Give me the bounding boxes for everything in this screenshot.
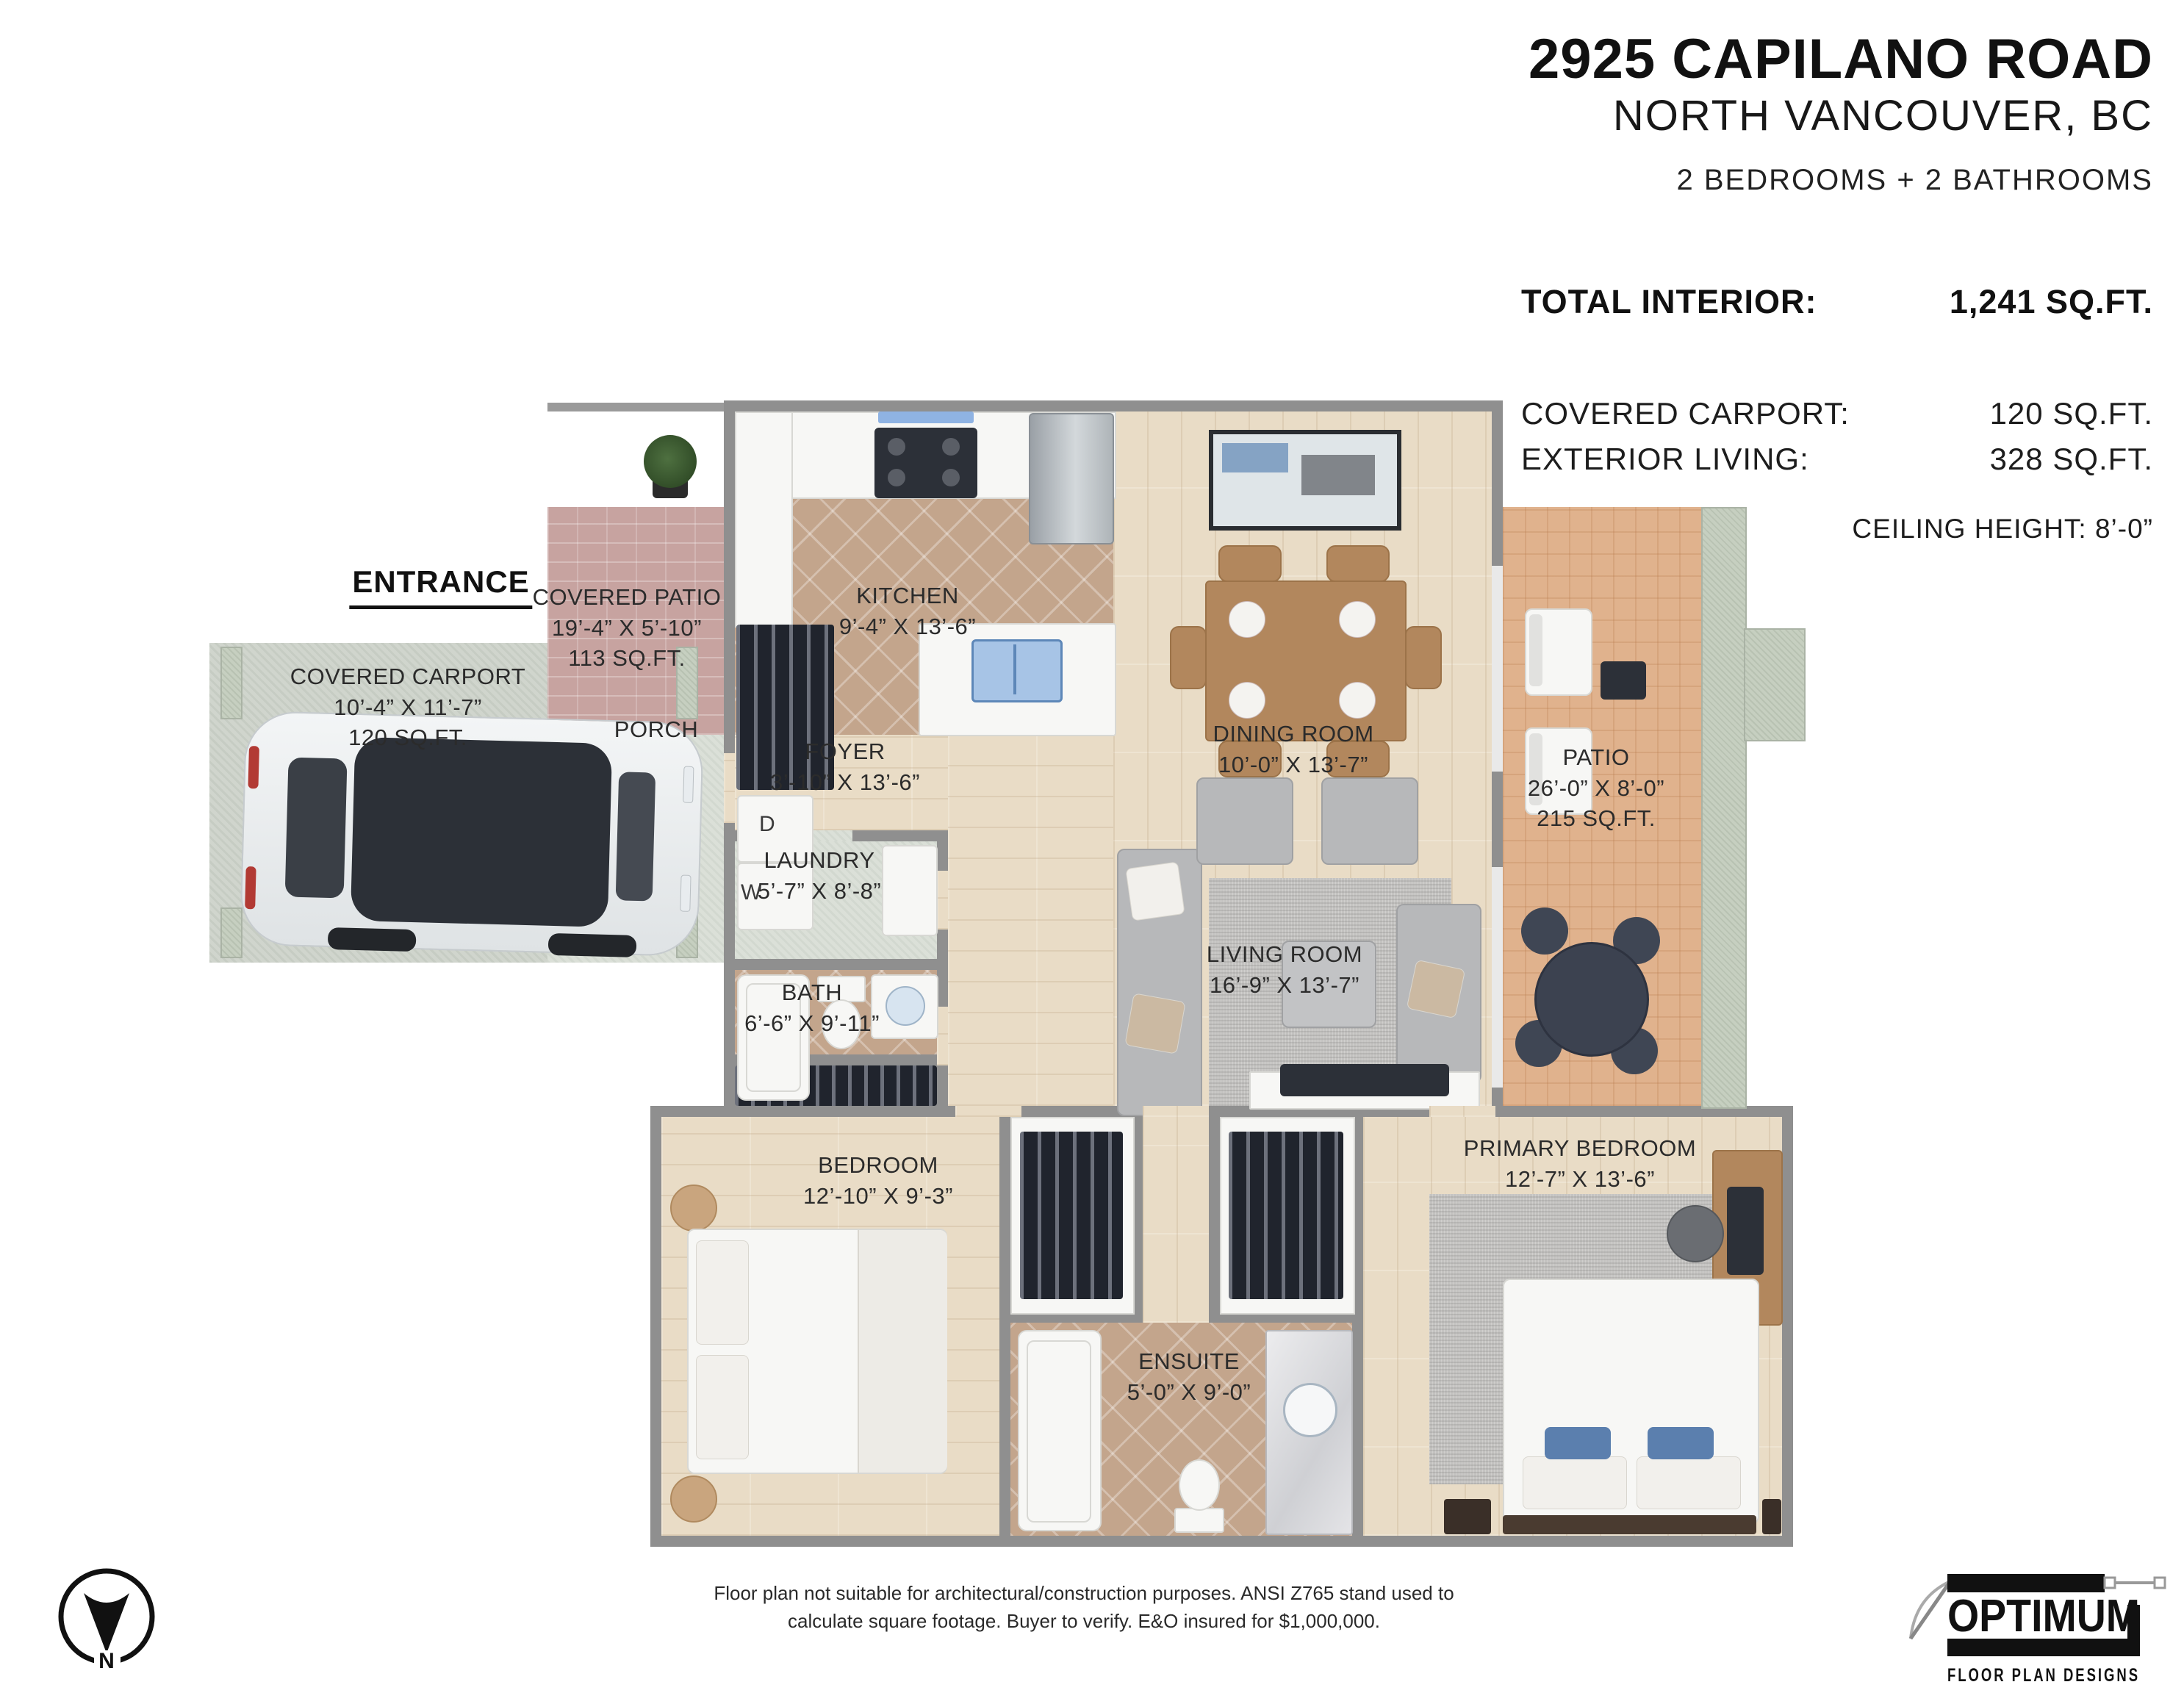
listing-header: 2925 CAPILANO ROAD NORTH VANCOUVER, BC 2… bbox=[1529, 29, 2153, 197]
room-label-kitchen: KITCHEN 9’-4” X 13’-6” bbox=[839, 580, 976, 641]
optimum-logo: OPTIMUM FLOOR PLAN DESIGNS bbox=[1905, 1559, 2177, 1692]
kitchen-tall-cabinet bbox=[735, 411, 793, 628]
logo-title: OPTIMUM bbox=[1947, 1591, 2140, 1642]
room-label-covered-patio: COVERED PATIO 19’-4” X 5’-10” 113 SQ.FT. bbox=[533, 582, 722, 674]
ensuite-toilet-tank-icon bbox=[1174, 1508, 1224, 1533]
sofa-icon bbox=[1117, 849, 1202, 1116]
room-label-primary-bedroom: PRIMARY BEDROOM 12’-7” X 13’-6” bbox=[1464, 1133, 1696, 1194]
room-label-bath: BATH 6’-6” X 9’-11” bbox=[744, 977, 880, 1038]
plant-icon bbox=[644, 435, 697, 488]
dining-chair bbox=[1326, 545, 1390, 582]
laundry-side-door-opening bbox=[937, 871, 948, 930]
patio-chair-icon bbox=[1521, 907, 1568, 955]
room-label-ensuite: ENSUITE 5’-0” X 9’-0” bbox=[1127, 1346, 1251, 1407]
loveseat-icon bbox=[1396, 904, 1481, 1083]
closet-clothes bbox=[1020, 1132, 1123, 1299]
area-stats: TOTAL INTERIOR: 1,241 SQ.FT. COVERED CAR… bbox=[1521, 283, 2153, 544]
dining-chair bbox=[1218, 545, 1282, 582]
washer-letter: W bbox=[741, 880, 761, 905]
room-label-patio: PATIO 26’-0” X 8’-0” 215 SQ.FT. bbox=[1528, 742, 1664, 834]
bath-door-opening bbox=[937, 1007, 948, 1065]
listing-city: NORTH VANCOUVER, BC bbox=[1529, 90, 2153, 143]
north-compass-icon: N bbox=[51, 1564, 169, 1685]
disclaimer: Floor plan not suitable for architectura… bbox=[643, 1580, 1525, 1635]
armchair-icon bbox=[1321, 777, 1418, 865]
covered-carport-value: 120 SQ.FT. bbox=[1990, 396, 2153, 431]
corridor-door-opening bbox=[1143, 1106, 1209, 1117]
range-hood-icon bbox=[878, 411, 974, 423]
primary-nightstand-icon bbox=[1444, 1499, 1491, 1534]
primary-door-opening bbox=[1429, 1106, 1495, 1117]
ensuite-vanity bbox=[1265, 1330, 1353, 1535]
carport-post bbox=[220, 647, 243, 719]
patio-side-table-icon bbox=[1601, 661, 1646, 700]
rooms-summary: 2 BEDROOMS + 2 BATHROOMS bbox=[1529, 164, 2153, 197]
exterior-living-label: EXTERIOR LIVING: bbox=[1521, 442, 1809, 477]
primary-bed-icon bbox=[1503, 1279, 1759, 1524]
logo-subtitle: FLOOR PLAN DESIGNS bbox=[1947, 1665, 2140, 1686]
disclaimer-line2: calculate square footage. Buyer to verif… bbox=[643, 1608, 1525, 1636]
bath-vanity bbox=[871, 974, 938, 1039]
adirondack-chair-icon bbox=[1525, 608, 1592, 696]
room-label-porch: PORCH bbox=[614, 714, 698, 745]
room-label-dining-room: DINING ROOM 10’-0” X 13’-7” bbox=[1213, 719, 1373, 780]
room-label-foyer: FOYER 3’-10” X 13’-6” bbox=[770, 736, 920, 797]
ensuite-toilet-bowl-icon bbox=[1179, 1459, 1220, 1511]
total-interior-label: TOTAL INTERIOR: bbox=[1521, 283, 1817, 321]
dining-chair bbox=[1170, 626, 1207, 689]
primary-nightstand-icon bbox=[1762, 1499, 1781, 1534]
sliding-door-opening bbox=[1492, 867, 1503, 1088]
bedroom-door-opening bbox=[955, 1106, 1021, 1117]
desk-chair-icon bbox=[1667, 1205, 1724, 1262]
dining-chair bbox=[1405, 626, 1442, 689]
tv-icon bbox=[1280, 1064, 1449, 1096]
ensuite-tub-icon bbox=[1018, 1330, 1102, 1531]
room-label-entrance: ENTRANCE bbox=[349, 564, 532, 609]
dryer-letter: D bbox=[759, 812, 775, 837]
kitchen-sink-icon bbox=[971, 639, 1063, 702]
stove-icon bbox=[874, 428, 977, 498]
armchair-icon bbox=[1196, 777, 1293, 865]
entry-door-opening bbox=[724, 753, 735, 823]
room-label-bedroom: BEDROOM 12’-10” X 9’-3” bbox=[803, 1150, 953, 1211]
fridge-icon bbox=[1029, 413, 1114, 544]
patio-door-opening bbox=[1492, 566, 1503, 772]
room-label-living-room: LIVING ROOM 16’-9” X 13’-7” bbox=[1207, 939, 1362, 1000]
patio-table-icon bbox=[1534, 942, 1649, 1057]
ensuite-corridor-floor bbox=[1143, 1117, 1209, 1323]
bed-icon bbox=[687, 1229, 947, 1474]
dining-table bbox=[1205, 580, 1407, 741]
patio-planter bbox=[1744, 628, 1806, 741]
room-label-covered-carport: COVERED CARPORT 10’-4” X 11’-7” 120 SQ.F… bbox=[290, 661, 525, 753]
hall-floor bbox=[948, 735, 1113, 1106]
covered-patio-roof-edge bbox=[547, 403, 724, 411]
page-title: 2925 CAPILANO ROAD bbox=[1529, 29, 2153, 90]
disclaimer-line1: Floor plan not suitable for architectura… bbox=[643, 1580, 1525, 1608]
laundry-cabinet bbox=[882, 845, 938, 936]
room-label-laundry: LAUNDRY 5’-7” X 8’-8” bbox=[758, 845, 881, 906]
exterior-living-value: 328 SQ.FT. bbox=[1990, 442, 2153, 477]
svg-text:N: N bbox=[98, 1649, 115, 1673]
wall-art-icon bbox=[1209, 430, 1401, 531]
patio-wall bbox=[1701, 507, 1747, 1109]
total-interior-value: 1,241 SQ.FT. bbox=[1950, 283, 2153, 321]
covered-carport-label: COVERED CARPORT: bbox=[1521, 396, 1850, 431]
nightstand-icon bbox=[670, 1185, 717, 1232]
closet-clothes bbox=[1229, 1132, 1343, 1299]
headboard-icon bbox=[1503, 1515, 1756, 1534]
nightstand-icon bbox=[670, 1475, 717, 1523]
